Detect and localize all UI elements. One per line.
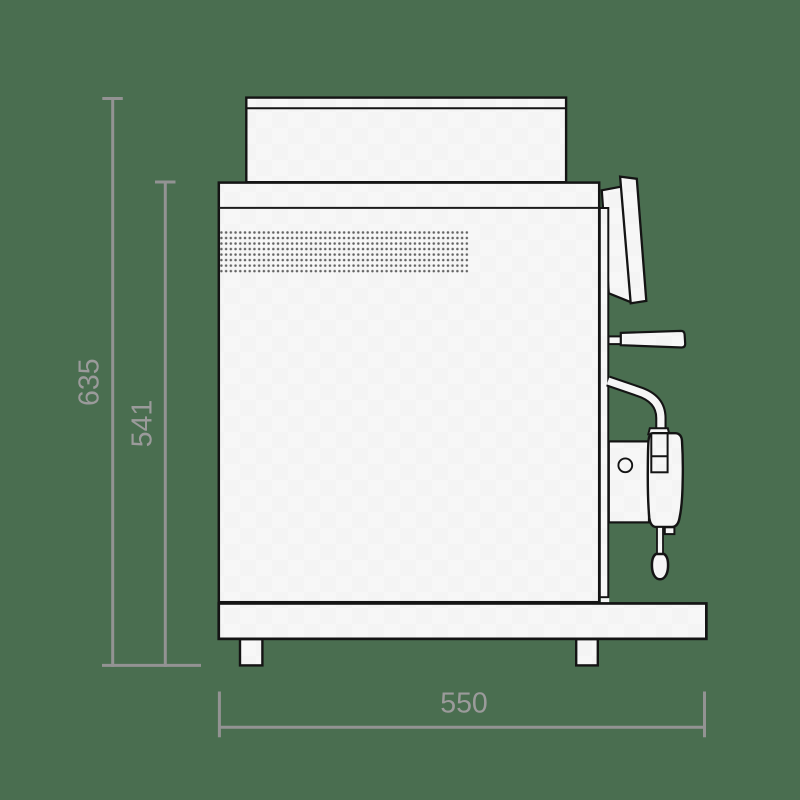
svg-text:541: 541 [126,400,158,448]
svg-text:635: 635 [73,358,105,406]
svg-text:550: 550 [440,688,488,720]
